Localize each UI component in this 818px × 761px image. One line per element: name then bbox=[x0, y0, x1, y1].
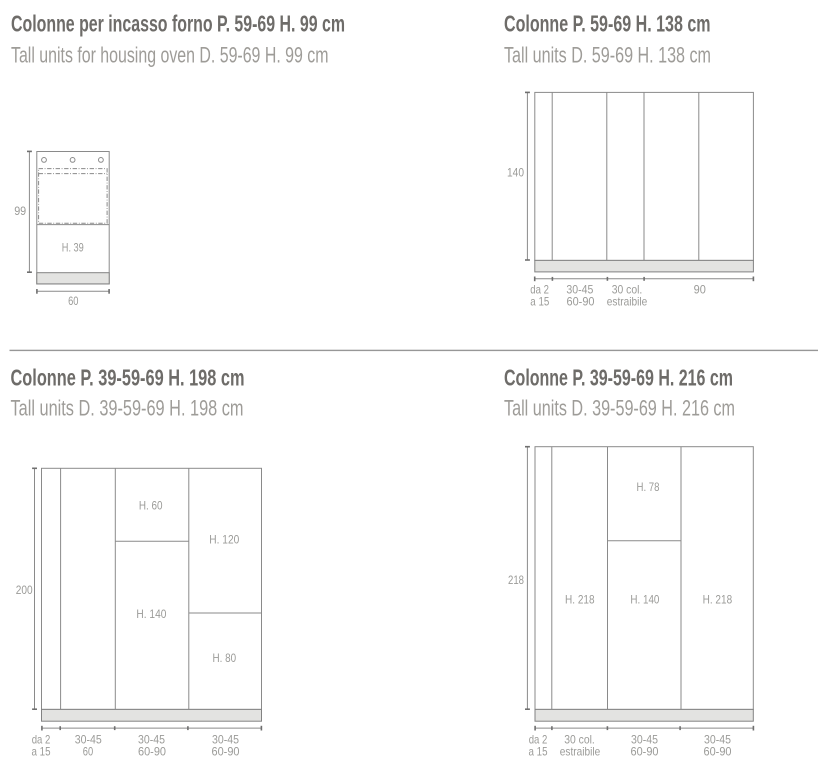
svg-text:60-90: 60-90 bbox=[631, 745, 659, 759]
svg-text:a 15: a 15 bbox=[530, 295, 549, 309]
svg-text:218: 218 bbox=[508, 573, 524, 587]
svg-text:60-90: 60-90 bbox=[704, 745, 732, 759]
svg-text:estraibile: estraibile bbox=[560, 745, 601, 759]
svg-text:Tall units for housing oven D.: Tall units for housing oven D. 59-69 H. … bbox=[11, 42, 329, 67]
svg-text:60: 60 bbox=[83, 745, 94, 759]
svg-text:60-90: 60-90 bbox=[567, 295, 595, 309]
svg-text:Colonne P. 39-59-69 H. 216 cm: Colonne P. 39-59-69 H. 216 cm bbox=[504, 365, 733, 391]
svg-text:H. 60: H. 60 bbox=[139, 499, 163, 513]
svg-text:60-90: 60-90 bbox=[138, 745, 166, 759]
svg-text:H. 140: H. 140 bbox=[136, 607, 166, 621]
svg-text:H. 39: H. 39 bbox=[62, 241, 84, 255]
svg-text:H. 120: H. 120 bbox=[209, 533, 239, 547]
svg-text:a 15: a 15 bbox=[529, 745, 548, 759]
svg-text:99: 99 bbox=[14, 204, 26, 218]
svg-text:Tall units D. 59-69 H. 138 cm: Tall units D. 59-69 H. 138 cm bbox=[504, 42, 711, 67]
svg-text:Colonne per incasso forno P. 5: Colonne per incasso forno P. 59-69 H. 99… bbox=[11, 10, 345, 36]
svg-text:H. 140: H. 140 bbox=[630, 592, 659, 606]
svg-text:Colonne P. 59-69 H. 138 cm: Colonne P. 59-69 H. 138 cm bbox=[504, 10, 711, 36]
svg-text:a 15: a 15 bbox=[32, 745, 51, 759]
svg-text:200: 200 bbox=[16, 583, 33, 597]
svg-text:60-90: 60-90 bbox=[212, 745, 240, 759]
svg-text:60: 60 bbox=[68, 294, 79, 308]
svg-text:Tall units D. 39-59-69 H. 198: Tall units D. 39-59-69 H. 198 cm bbox=[11, 396, 244, 421]
svg-text:90: 90 bbox=[694, 282, 706, 296]
svg-text:H. 218: H. 218 bbox=[703, 592, 733, 606]
svg-text:estraibile: estraibile bbox=[607, 295, 648, 309]
svg-text:H. 218: H. 218 bbox=[565, 592, 595, 606]
svg-text:Tall units D. 39-59-69 H. 216: Tall units D. 39-59-69 H. 216 cm bbox=[504, 396, 735, 421]
svg-text:Colonne P. 39-59-69 H. 198 cm: Colonne P. 39-59-69 H. 198 cm bbox=[11, 365, 245, 391]
svg-text:H. 80: H. 80 bbox=[213, 651, 237, 665]
svg-text:H. 78: H. 78 bbox=[637, 480, 660, 494]
svg-text:140: 140 bbox=[507, 166, 524, 180]
